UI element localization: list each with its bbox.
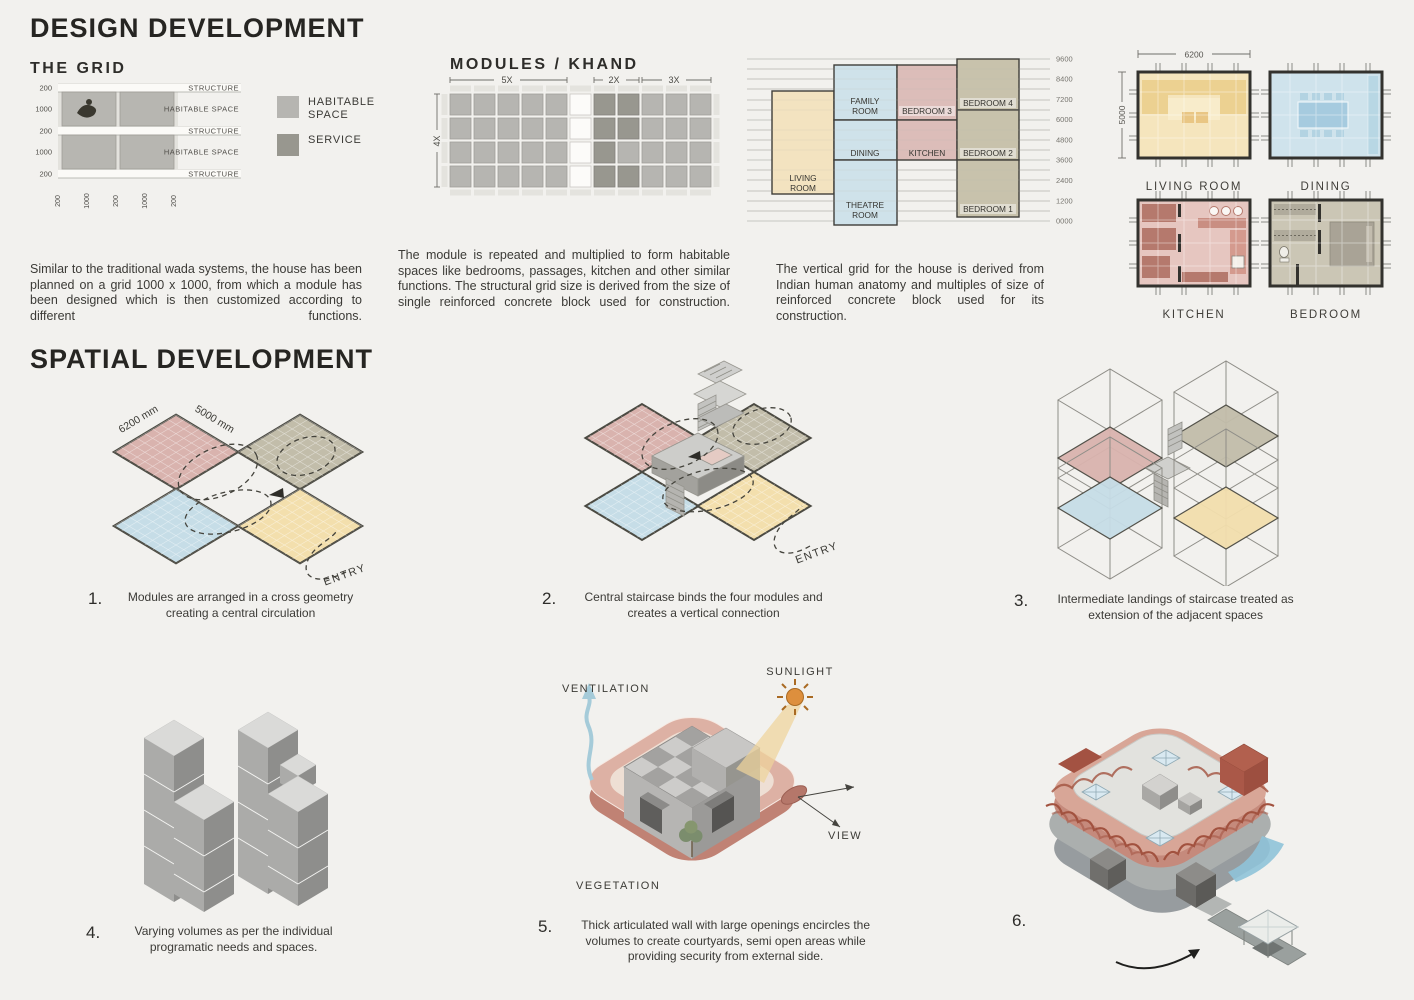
legend: HABITABLE SPACE SERVICE [277, 96, 380, 156]
dim-3x: 3X [668, 75, 679, 85]
ventilation-arrow-icon [582, 683, 596, 780]
volume-cluster-left [144, 720, 234, 912]
service-swatch [277, 134, 299, 156]
grid-right-label: HABITABLE SPACE [164, 105, 239, 114]
vegetation-label: VEGETATION [576, 880, 660, 892]
entry-label: ENTRY [794, 540, 840, 567]
dim-5x: 5X [501, 75, 512, 85]
room-label: LIVING [789, 173, 816, 183]
volume-cluster-right [238, 712, 328, 906]
step-number: 4. [86, 924, 100, 942]
grid-right-label: STRUCTURE [188, 170, 239, 179]
caption-2: 2. Central staircase binds the four modu… [542, 590, 842, 621]
legend-item-service: SERVICE [277, 134, 380, 156]
legend-label: SERVICE [308, 134, 380, 147]
grid-left-label: 200 [39, 170, 52, 179]
scale-label: 4800 [1056, 136, 1073, 145]
plan-label: LIVING ROOM [1146, 181, 1242, 193]
grid-bottom-label: 1000 [84, 193, 91, 209]
legend-label: HABITABLE SPACE [308, 96, 380, 122]
step-number: 1. [88, 590, 102, 608]
scale-label: 1200 [1056, 197, 1073, 206]
plan-dim-height: 5000 [1117, 105, 1127, 124]
step-number: 3. [1014, 592, 1028, 610]
step-caption: Central staircase binds the four modules… [565, 590, 842, 621]
paragraph-section: The vertical grid for the house is deriv… [776, 262, 1044, 324]
ventilation-label: VENTILATION [562, 683, 650, 695]
room-label: ROOM [790, 183, 816, 193]
legend-item-habitable: HABITABLE SPACE [277, 96, 380, 122]
room-plans: 6200 5000 [1102, 40, 1408, 332]
room-label: ROOM [852, 106, 878, 116]
step-caption: Thick articulated wall with large openin… [561, 918, 890, 965]
grid-section-title: THE GRID [30, 60, 126, 78]
dim-4x: 4X [432, 135, 442, 146]
grid-left-label: 200 [39, 127, 52, 136]
room-label: FAMILY [851, 96, 880, 106]
grid-bottom-label: 200 [113, 195, 120, 207]
dim-2x: 2X [608, 75, 619, 85]
presentation-board: DESIGN DEVELOPMENT THE GRID MODULES / KH… [0, 0, 1414, 1000]
room-label: BEDROOM 1 [963, 204, 1013, 214]
view-label: VIEW [828, 830, 862, 842]
section-rooms [772, 59, 1019, 225]
plan-dim-width: 6200 [1185, 50, 1204, 60]
caption-1: 1. Modules are arranged in a cross geome… [88, 590, 370, 621]
grid-left-label: 1000 [35, 105, 52, 114]
sunlight-label: SUNLIGHT [766, 666, 834, 678]
grid-left-label: 1000 [35, 148, 52, 157]
scale-label: 8400 [1056, 75, 1073, 84]
grid-right-label: STRUCTURE [188, 127, 239, 136]
room-label: THEATRE [846, 200, 885, 210]
step2-diagram: ENTRY [548, 360, 848, 592]
entry-walkway [1116, 909, 1306, 968]
direction-arrow-icon [269, 488, 284, 498]
step4-diagram [102, 666, 352, 916]
step-number: 6. [1012, 912, 1026, 930]
caption-6: 6. [1012, 912, 1026, 930]
page-title: DESIGN DEVELOPMENT [30, 13, 365, 44]
step3-diagram [1018, 358, 1318, 586]
scale-label: 6000 [1056, 115, 1073, 124]
room-label: KITCHEN [909, 148, 945, 158]
grid-diagram: 200 1000 200 1000 200 STRUCTURE HABITABL… [28, 83, 243, 225]
grid-bottom-label: 200 [171, 195, 178, 207]
step1-diagram: 6200 mm 5000 mm ENTRY [78, 390, 398, 590]
step-number: 2. [542, 590, 556, 608]
exploded-boxes [1058, 361, 1278, 586]
caption-3: 3. Intermediate landings of staircase tr… [1014, 592, 1314, 623]
scale-label: 0000 [1056, 217, 1073, 226]
plan-label: KITCHEN [1162, 309, 1225, 321]
room-label: ROOM [852, 210, 878, 220]
step-caption: Intermediate landings of staircase treat… [1037, 592, 1314, 623]
scale-label: 2400 [1056, 176, 1073, 185]
grid-bottom-labels: 200 1000 200 1000 200 [55, 193, 178, 209]
plan-kitchen [1129, 191, 1259, 295]
step5-diagram: VENTILATION SUNLIGHT VIEW VEGETATION [542, 655, 882, 920]
entry-label: ENTRY [322, 562, 368, 589]
grid-right-label: STRUCTURE [188, 84, 239, 93]
scale-label: 3600 [1056, 156, 1073, 165]
caption-5: 5. Thick articulated wall with large ope… [538, 918, 890, 965]
plan-living-room [1129, 63, 1259, 167]
plan-label: BEDROOM [1290, 309, 1362, 321]
plan-dining [1261, 63, 1391, 167]
room-label: DINING [850, 148, 879, 158]
grid-bottom-label: 1000 [142, 193, 149, 209]
paragraph-modules: The module is repeated and multiplied to… [398, 248, 730, 310]
module-cells [450, 94, 711, 187]
habitable-swatch [277, 96, 299, 118]
modules-diagram: 5X 2X 3X 4X [430, 72, 730, 205]
module-plates [114, 415, 362, 564]
scale-label: 7200 [1056, 95, 1073, 104]
section-diagram: LIVING ROOM FAMILY ROOM DINING THEATRE R… [745, 48, 1075, 240]
step-caption: Modules are arranged in a cross geometry… [111, 590, 370, 621]
entry-arrow-icon [1116, 953, 1194, 968]
caption-4: 4. Varying volumes as per the individual… [86, 924, 358, 955]
step6-diagram [1000, 652, 1340, 987]
paragraph-grid: Similar to the traditional wada systems,… [30, 262, 362, 324]
step-caption: Varying volumes as per the individual pr… [109, 924, 358, 955]
grid-left-label: 200 [39, 84, 52, 93]
scale-label: 9600 [1056, 55, 1073, 64]
step-number: 5. [538, 918, 552, 936]
spatial-title: SPATIAL DEVELOPMENT [30, 344, 373, 375]
grid-right-label: HABITABLE SPACE [164, 148, 239, 157]
grid-bottom-label: 200 [55, 195, 62, 207]
room-label: BEDROOM 2 [963, 148, 1013, 158]
plan-label: DINING [1300, 181, 1351, 193]
section-scale: 9600 8400 7200 6000 4800 3600 2400 1200 … [1056, 55, 1073, 226]
room-label: BEDROOM 4 [963, 98, 1013, 108]
plan-bedroom [1261, 191, 1391, 295]
room-label: BEDROOM 3 [902, 106, 952, 116]
